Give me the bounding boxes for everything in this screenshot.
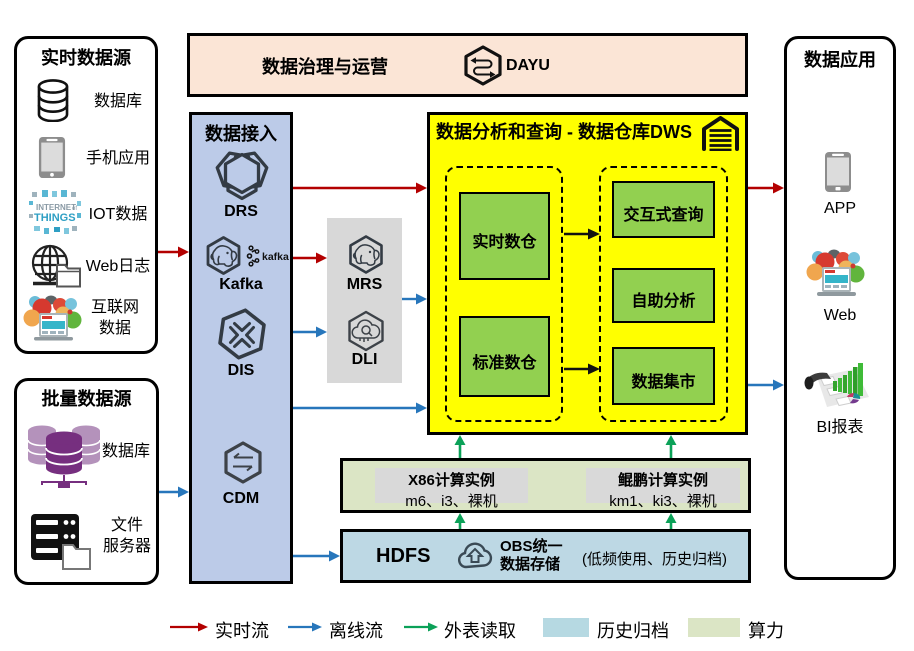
svg-text:kafka: kafka bbox=[262, 251, 289, 263]
svg-text:INTERNET: INTERNET bbox=[36, 203, 76, 212]
svg-text:THINGS: THINGS bbox=[34, 212, 76, 224]
